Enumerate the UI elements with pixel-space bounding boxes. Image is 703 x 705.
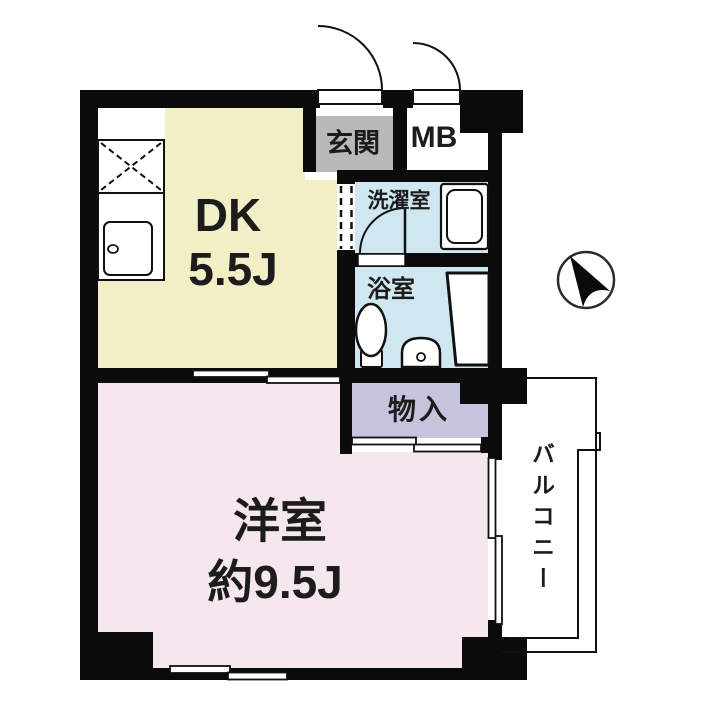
laundry-dashed-opening	[341, 186, 352, 249]
kitchen-stove	[98, 140, 164, 193]
label-dk-size: 5.5J	[188, 246, 278, 292]
meter-box-swing-door	[413, 43, 460, 104]
bathroom-swing-door	[358, 208, 405, 266]
dk-west-sliding-door	[193, 371, 340, 384]
washing-machine	[441, 184, 488, 249]
kitchen-sink	[98, 193, 164, 280]
label-storage: 物入	[388, 396, 450, 424]
toilet	[356, 304, 386, 367]
balcony-sliding-window	[489, 458, 503, 624]
label-dk: DK	[195, 192, 261, 238]
south-sliding-window	[170, 666, 287, 680]
label-laundry: 洗濯室	[368, 191, 431, 212]
entrance-swing-door	[318, 26, 382, 104]
label-balcony: バルコニー	[530, 442, 553, 597]
floor-plan: DK 5.5J 玄関 MB 洗濯室 浴室 物入 洋室 約9.5J バルコニー	[0, 0, 703, 705]
plan-symbols	[0, 0, 703, 705]
label-entrance: 玄関	[326, 131, 380, 158]
bathtub	[447, 273, 489, 365]
storage-sliding-door	[352, 438, 481, 452]
washbasin	[402, 338, 440, 367]
label-meter-box: MB	[411, 123, 458, 153]
label-bathroom: 浴室	[367, 278, 415, 302]
label-western-room-size: 約9.5J	[207, 559, 343, 605]
label-western-room: 洋室	[233, 498, 327, 545]
north-arrow-icon	[558, 252, 614, 308]
